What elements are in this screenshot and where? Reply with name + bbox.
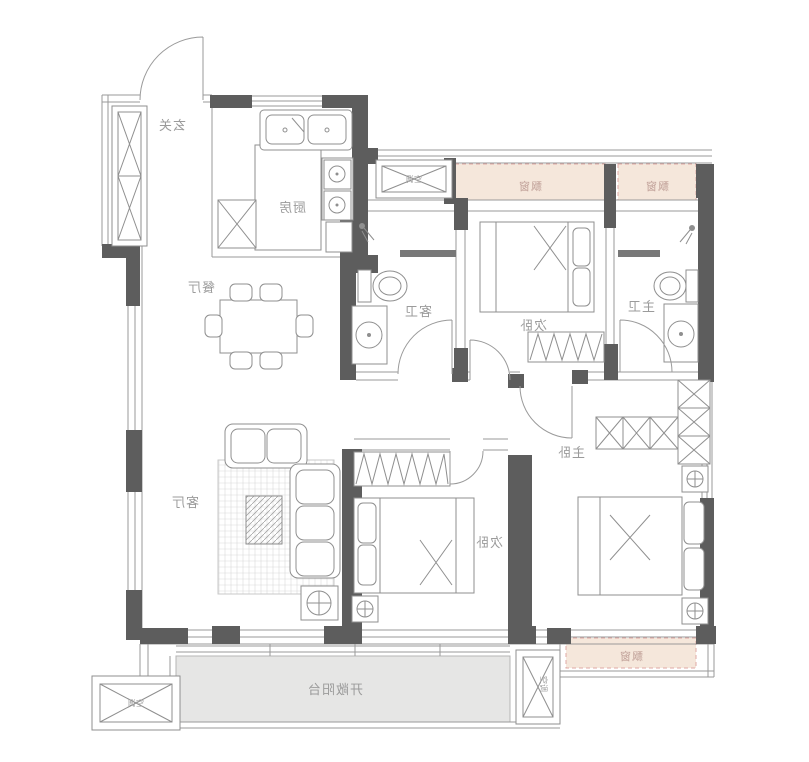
dining-set bbox=[205, 284, 313, 369]
label-master-bath: 主卫 bbox=[627, 299, 655, 314]
coffee-table bbox=[246, 496, 282, 544]
nightstand bbox=[352, 596, 378, 622]
floor-lamp bbox=[301, 586, 338, 620]
label-bedroom-top: 次卧 bbox=[519, 318, 547, 333]
label-dining: 餐厅 bbox=[187, 280, 215, 295]
label-bay-window-2: 飘窗 bbox=[645, 179, 669, 193]
toilet bbox=[358, 270, 407, 302]
duct-shaft bbox=[112, 106, 147, 246]
dining-table bbox=[220, 300, 297, 353]
shower-head-icon bbox=[680, 225, 695, 244]
fridge bbox=[218, 200, 256, 248]
vanity-sink bbox=[352, 306, 387, 364]
label-balcony: 开敞阳台 bbox=[307, 682, 363, 697]
kitchen-cabinet bbox=[326, 222, 352, 252]
floor-plan-page: 空调 空调 空调 玄关 厨房 餐厅 客厅 客卫 次卧 主卫 主卧 次卧 bbox=[0, 0, 809, 762]
guest-bath-door bbox=[398, 320, 452, 374]
nightstand bbox=[682, 598, 708, 624]
master-bedroom-furniture bbox=[578, 380, 710, 624]
bedroom-bottom-furniture bbox=[352, 452, 474, 622]
label-entry: 玄关 bbox=[158, 118, 186, 133]
stove bbox=[322, 158, 353, 220]
bench-sofa bbox=[225, 424, 307, 468]
label-guest-bath: 客卫 bbox=[404, 304, 432, 319]
sofa bbox=[290, 464, 340, 578]
living-furniture bbox=[218, 424, 340, 620]
ac-label: 空调 bbox=[406, 174, 422, 184]
bedroom-top-furniture bbox=[480, 222, 604, 362]
ac-platform-bottom-left: 空调 bbox=[92, 676, 180, 730]
kitchen-sink bbox=[260, 110, 352, 150]
wardrobe bbox=[528, 332, 604, 362]
entry-door bbox=[140, 37, 203, 100]
label-bay-window-3: 飘窗 bbox=[619, 649, 643, 663]
label-bedroom-bottom: 次卧 bbox=[475, 535, 503, 550]
label-bay-window-1: 飘窗 bbox=[518, 179, 542, 193]
ac-platform-top: 空调 bbox=[376, 160, 452, 198]
wardrobe bbox=[354, 452, 450, 486]
bed bbox=[354, 498, 474, 593]
master-bedroom-door bbox=[520, 386, 572, 438]
ac-label: 空调 bbox=[128, 698, 144, 708]
kitchen-counter bbox=[255, 145, 321, 250]
bath-shelf bbox=[400, 250, 456, 257]
bath-shelf bbox=[618, 250, 660, 257]
bed bbox=[578, 497, 704, 595]
bed bbox=[480, 222, 594, 312]
bedroom-bottom-door bbox=[450, 451, 483, 484]
label-kitchen: 厨房 bbox=[278, 200, 306, 215]
label-living: 客厅 bbox=[171, 495, 199, 510]
floor-plan-svg: 空调 空调 空调 玄关 厨房 餐厅 客厅 客卫 次卧 主卫 主卧 次卧 bbox=[0, 0, 809, 762]
toilet bbox=[654, 270, 698, 302]
nightstand bbox=[682, 466, 708, 492]
master-bath-fixtures bbox=[618, 225, 698, 362]
bedroom-top-door bbox=[470, 340, 510, 380]
kitchen-fixtures bbox=[218, 110, 353, 252]
ac-platform-bottom-right: 空调 bbox=[516, 650, 560, 724]
ac-label: 空调 bbox=[539, 676, 549, 692]
wardrobe-l bbox=[596, 380, 710, 464]
label-master-bedroom: 主卧 bbox=[557, 445, 585, 460]
